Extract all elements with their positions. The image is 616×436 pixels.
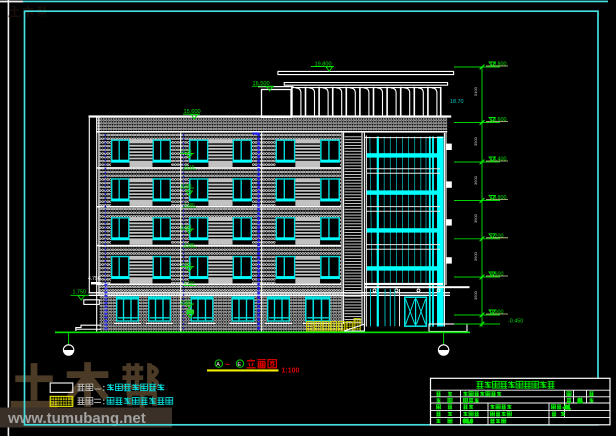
svg-text:5.400: 5.400 <box>181 224 192 229</box>
svg-text:0.000: 0.000 <box>181 299 192 304</box>
svg-text:3600: 3600 <box>473 290 478 300</box>
svg-text:5400: 5400 <box>473 86 478 96</box>
svg-text:E: E <box>237 362 241 368</box>
svg-text:12.60: 12.60 <box>181 149 192 154</box>
svg-text:1:100: 1:100 <box>282 367 300 374</box>
svg-text:18.70: 18.70 <box>450 99 464 105</box>
svg-text:1.750: 1.750 <box>73 290 87 296</box>
svg-text:3600: 3600 <box>473 175 478 185</box>
svg-text:3900: 3900 <box>473 136 478 146</box>
svg-text:3600: 3600 <box>473 213 478 223</box>
svg-text:11: 11 <box>578 398 583 404</box>
svg-text:11.10: 11.10 <box>184 164 195 169</box>
svg-text:~: ~ <box>225 360 231 371</box>
svg-text:4.750: 4.750 <box>88 276 101 282</box>
svg-text:-0.450: -0.450 <box>508 319 523 325</box>
svg-text:A: A <box>216 362 220 368</box>
svg-text:1.800: 1.800 <box>181 262 192 267</box>
svg-text:3.900: 3.900 <box>184 242 195 247</box>
svg-text:7.500: 7.500 <box>184 202 195 207</box>
svg-text:-01: -01 <box>563 405 570 411</box>
svg-text:0.300: 0.300 <box>184 281 195 286</box>
svg-text:06.6: 06.6 <box>463 419 473 425</box>
svg-text:9.000: 9.000 <box>181 183 192 188</box>
svg-text:3600: 3600 <box>473 251 478 261</box>
